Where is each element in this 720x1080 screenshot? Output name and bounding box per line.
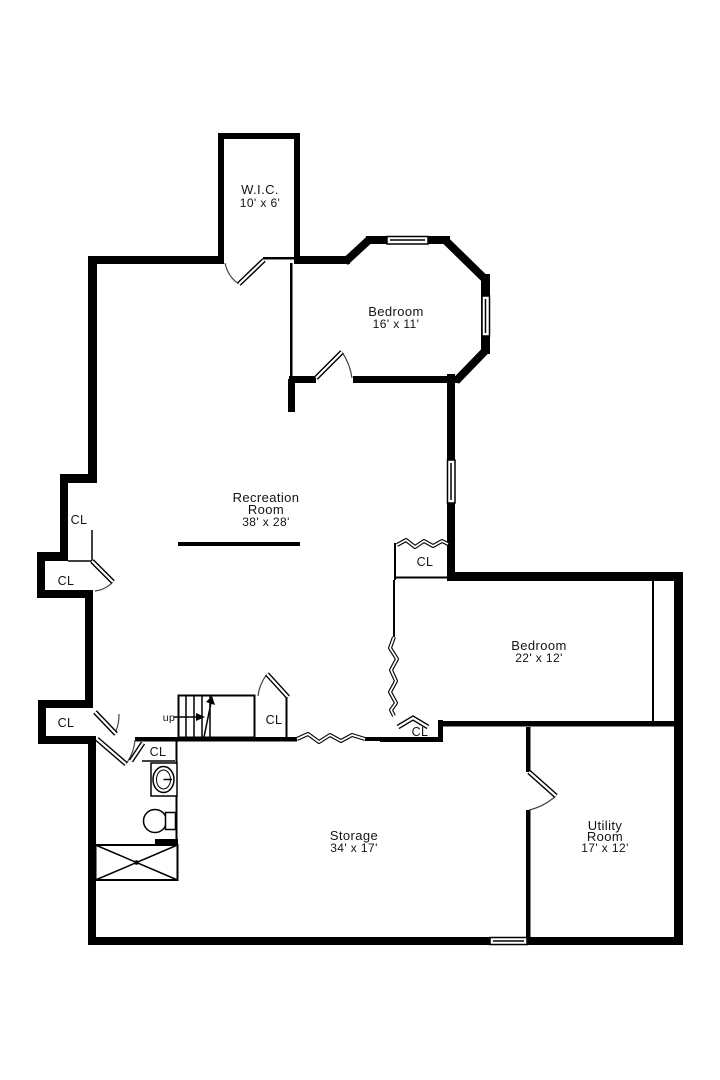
toilet-bowl-icon <box>144 810 167 833</box>
closet-label-b: CL <box>58 574 75 588</box>
recreation-dims: 38' x 28' <box>242 515 290 529</box>
wall-outer-right <box>674 572 683 945</box>
beam-line <box>178 542 300 546</box>
wall-wic-top <box>218 133 300 139</box>
stair-arrow-head <box>196 713 205 721</box>
crawl-space-center-dot <box>134 860 139 865</box>
closet-labels: CL CL CL CL CL CL CL up <box>58 513 434 759</box>
wic-dims: 10' x 6' <box>240 196 280 210</box>
wall-wic-right <box>294 133 300 264</box>
wall-bedroom1-bottom-right <box>353 376 460 383</box>
door-closet-e <box>258 674 288 697</box>
door-bedroom1 <box>316 352 352 378</box>
wall-diagonal-right-lower <box>456 349 487 381</box>
wall-bedroom1-left-thin <box>290 263 293 376</box>
wall-stub-below-bedroom1 <box>288 379 295 412</box>
zigzag-walls <box>297 540 448 742</box>
wall-closet-b-bottom <box>37 590 92 598</box>
window-bedroom1-right <box>482 296 490 336</box>
wall-top-left <box>88 256 222 264</box>
wall-outer-left-top <box>88 256 97 481</box>
window-recreation-right <box>448 460 456 503</box>
bathroom-fixtures <box>144 763 178 833</box>
wall-left-seg3 <box>85 590 93 708</box>
bedroom2-dims: 22' x 12' <box>515 651 563 665</box>
closet-label-c: CL <box>58 716 75 730</box>
wall-bedroom2-bottom <box>443 721 674 727</box>
wall-closet-c-bottom <box>38 736 96 744</box>
door-bathroom <box>97 739 135 764</box>
floor-plan: W.I.C. 10' x 6' Bedroom 16' x 11' Recrea… <box>0 0 720 1080</box>
window-bottom-wall <box>490 938 527 945</box>
wall-bedroom1-top-a <box>294 256 350 264</box>
bedroom1-dims: 16' x 11' <box>373 317 420 331</box>
door-utility <box>529 772 556 810</box>
outer-walls <box>37 133 683 945</box>
wall-wic-door-header <box>263 257 294 260</box>
window-bedroom1-top <box>387 237 428 245</box>
closet-label-a: CL <box>71 513 88 527</box>
wall-closet-c-top <box>38 700 93 708</box>
wall-utility-left-upper <box>526 727 531 772</box>
door-wic <box>225 260 264 284</box>
wall-utility-left-lower <box>526 810 531 937</box>
wall-bedroom2-top <box>447 572 675 581</box>
wall-outer-bottom <box>88 937 683 945</box>
wic-name: W.I.C. <box>241 182 279 197</box>
crawl-space-box <box>96 845 178 880</box>
utility-dims: 17' x 12' <box>581 841 629 855</box>
closet-label-e: CL <box>266 713 283 727</box>
wall-closet-g-right <box>438 720 443 741</box>
closet-label-g: CL <box>412 725 429 739</box>
wall-wic-left <box>218 133 224 264</box>
closet-label-f: CL <box>417 555 434 569</box>
wall-diagonal-left <box>345 239 370 262</box>
wall-outer-left-bottom <box>88 736 96 945</box>
closet-label-d: CL <box>150 745 167 759</box>
wall-diagonal-right-upper <box>444 239 487 281</box>
storage-dims: 34' x 17' <box>330 841 378 855</box>
stairs-up-label: up <box>163 712 175 724</box>
floor-plan-page: W.I.C. 10' x 6' Bedroom 16' x 11' Recrea… <box>0 0 720 1080</box>
wall-left-seg2 <box>60 474 68 559</box>
windows <box>387 237 527 945</box>
door-closet-c <box>95 712 119 734</box>
door-closet-b <box>92 561 113 591</box>
toilet-tank-icon <box>166 813 176 830</box>
stair-break-line <box>204 698 212 737</box>
